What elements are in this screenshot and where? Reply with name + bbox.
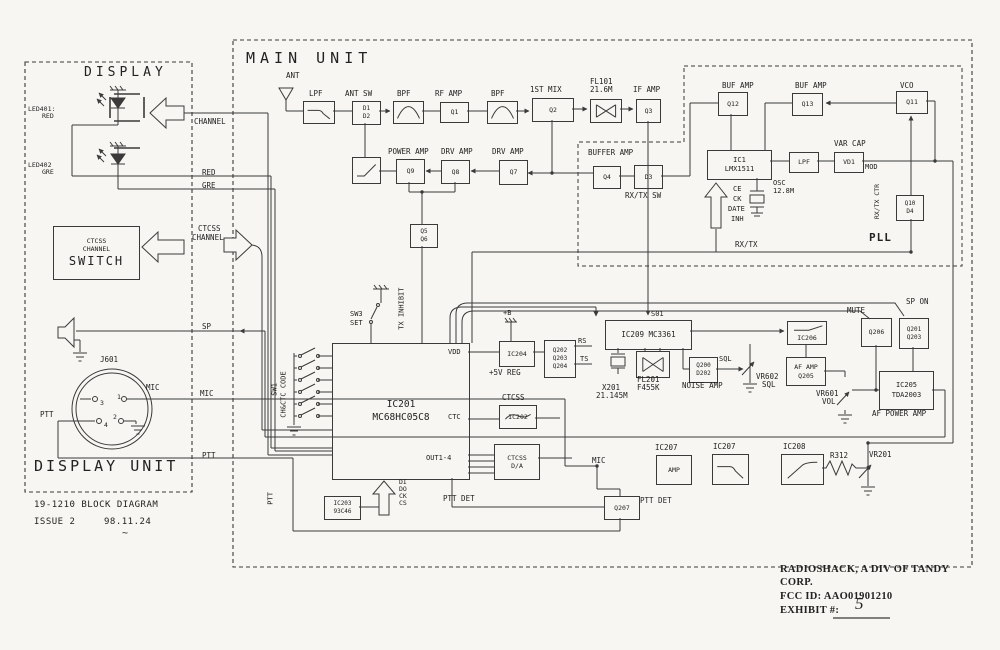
- eeprom-bus-arrow-icon: [373, 481, 395, 515]
- q206-box-text-0: Q206: [869, 328, 885, 336]
- out1-4-pin: OUT1-4: [426, 455, 451, 463]
- ic203-box-text-0: IC203: [333, 500, 351, 508]
- noise-amp-box: Q200D202: [689, 357, 718, 383]
- mic-node-label: MIC: [592, 457, 606, 465]
- if-amp-label: IF AMP: [633, 86, 660, 94]
- mute-label: MUTE: [847, 307, 865, 315]
- display-title: DISPLAY: [84, 66, 167, 80]
- lpf-box-symbol: [304, 102, 334, 123]
- ctcss-channel-arrow-icon: [224, 230, 252, 260]
- d3-box-text-0: D3: [645, 173, 653, 181]
- ic209-box-text-0: IC209 MC3361: [621, 330, 675, 340]
- q8-box-text-0: Q8: [452, 168, 460, 176]
- block-diagram-page: DISPLAYLED401:REDLED402GREJ601MICPTT3142…: [0, 0, 1000, 650]
- footer-fcc-id: FCC ID: AAO01901210: [780, 591, 892, 603]
- ctcss-da-box-text-1: D/A: [511, 462, 523, 470]
- pin-2: 2: [113, 414, 117, 421]
- q201-q203-box: Q201Q203: [899, 318, 929, 349]
- tx-inhibit-label: TX INHIBIT: [398, 288, 406, 330]
- rs-label: RS: [578, 338, 586, 346]
- pin-1: 1: [117, 394, 121, 401]
- q207-box: Q207: [604, 496, 640, 520]
- footer-company-1: RADIOSHACK, A DIV OF TANDY: [780, 564, 949, 576]
- q13-box: Q13: [792, 93, 823, 116]
- vr602-func: SQL: [762, 381, 776, 389]
- af-amp-box: AF AMPQ205: [786, 357, 826, 386]
- ant-sw-label: ANT SW: [345, 90, 372, 98]
- ic208-filter-box-symbol: [782, 455, 823, 484]
- reg-5v-label: +5V REG: [489, 369, 521, 377]
- q9-box-text-0: Q9: [407, 167, 415, 175]
- q202-box: Q202Q203Q204: [544, 340, 576, 378]
- ptt-vert-label: PTT: [267, 492, 275, 505]
- led402-color: GRE: [42, 169, 54, 176]
- q11-box-text-0: Q11: [906, 98, 918, 106]
- issue-label: ISSUE 2: [34, 518, 75, 528]
- q202-box-text-0: Q202: [553, 347, 567, 355]
- ant-sw-box: D1D2: [352, 101, 381, 125]
- rf-amp-box: Q1: [440, 102, 469, 123]
- buffer-amp-label: BUFFER AMP: [588, 149, 633, 157]
- ck-label: CK: [733, 196, 741, 204]
- q202-box-text-1: Q203: [553, 355, 567, 363]
- ic1-box-text-1: LMX1511: [725, 165, 755, 174]
- footer-company-2: CORP.: [780, 577, 813, 589]
- q11-box: Q11: [896, 91, 928, 114]
- drv-amp2-label: DRV AMP: [492, 148, 524, 156]
- q206-box: Q206: [861, 318, 892, 347]
- pll-bus-arrow-icon: [705, 183, 727, 228]
- r312-label: R312: [830, 452, 848, 460]
- ic204-box-text-0: IC204: [507, 350, 527, 358]
- tx-rx-ant-switch-box-symbol: [353, 158, 380, 183]
- ic202-box: IC202: [499, 405, 537, 429]
- noise-amp-box-text-1: D202: [696, 370, 710, 378]
- ctc-pin: CTC: [448, 414, 461, 422]
- rx-tx-ctr-label: RX/TX CTR: [874, 184, 881, 219]
- ic207-filter-box-symbol: [713, 455, 748, 484]
- main-title: MAIN UNIT: [246, 50, 372, 67]
- af-amp-box-text-0: AF AMP: [794, 363, 817, 371]
- ptt-det-label-1: PTT DET: [443, 495, 475, 503]
- led402-icon: [97, 146, 125, 178]
- mic-amp-box: AMP: [656, 455, 692, 485]
- ic205-box: IC205TDA2003: [879, 371, 934, 410]
- model-line: 19-1210 BLOCK DIAGRAM: [34, 501, 158, 511]
- ctcss-switch-box-text-2: SWITCH: [69, 254, 124, 270]
- ic204-box: IC204: [499, 341, 535, 367]
- ctcss-switch-box-text-1: CHANNEL: [83, 245, 110, 253]
- cs-label: CS: [399, 500, 407, 507]
- data-label: DATE: [728, 206, 745, 214]
- bpf1-box-symbol: [394, 102, 423, 123]
- q201-q203-box-text-1: Q203: [907, 334, 921, 342]
- ic203-box-text-1: 93C46: [333, 508, 351, 516]
- sig-ctcss-1: CTCSS: [198, 225, 221, 233]
- osc-freq: 12.8M: [773, 188, 794, 196]
- mic-amp-box-text-0: AMP: [668, 466, 680, 474]
- channel-arrow-icon: [150, 98, 184, 128]
- sig-gre: GRE: [202, 182, 216, 190]
- x201-freq: 21.145M: [596, 392, 628, 400]
- drv-amp1-label: DRV AMP: [441, 148, 473, 156]
- ce-label: CE: [733, 186, 741, 194]
- ic207b-label: IC207: [713, 443, 736, 451]
- sig-sp: SP: [202, 323, 211, 331]
- ic207-filter-box: [712, 454, 749, 485]
- if-amp-box-text-0: Q3: [645, 107, 653, 115]
- q4-box: Q4: [593, 166, 621, 189]
- first-mix-box: Q2: [532, 98, 574, 122]
- bpf1-box: [393, 101, 424, 124]
- fl101-box-symbol: [591, 100, 621, 122]
- ic208-filter-box: [781, 454, 824, 485]
- power-amp-label: POWER AMP: [388, 148, 429, 156]
- ic207a-label: IC207: [655, 444, 678, 452]
- pin-4: 4: [104, 422, 108, 429]
- ic203-box: IC20393C46: [324, 496, 361, 520]
- q5-q6-box: Q5Q6: [410, 224, 438, 248]
- sig-ctcss-2: CHANNEL: [192, 234, 224, 242]
- bpf1-label: BPF: [397, 90, 411, 98]
- ctcss-switch-box: CTCSSCHANNELSWITCH: [53, 226, 140, 280]
- q10-d4-box: Q10D4: [896, 195, 924, 221]
- ic205-box-text-1: TDA2003: [892, 391, 922, 400]
- ctcss-arrow-icon: [142, 232, 184, 262]
- q9-box: Q9: [396, 159, 425, 184]
- fl201-box: [636, 351, 670, 378]
- connector-j601: [72, 369, 152, 449]
- vdd-pin: VDD: [448, 349, 461, 357]
- q5-q6-box-text-0: Q5: [420, 228, 427, 236]
- ant-sw-box-text-0: D1: [363, 105, 370, 113]
- af-amp-box-text-1: Q205: [798, 372, 814, 380]
- sig-red: RED: [202, 169, 216, 177]
- fl101-freq: 21.6M: [590, 86, 613, 94]
- rf-amp-label: RF AMP: [435, 90, 462, 98]
- mod-label: MOD: [865, 164, 878, 172]
- tx-rx-ant-switch-box: [352, 157, 381, 184]
- if-amp-box: Q3: [636, 99, 661, 123]
- af-power-amp-label: AF POWER AMP: [872, 410, 926, 418]
- ctcss-switch-box-text-0: CTCSS: [87, 237, 107, 245]
- ic202-box-text-0: IC202: [508, 413, 528, 421]
- tilde-mark: ~: [122, 528, 128, 539]
- q8-box: Q8: [441, 160, 470, 184]
- q7-box: Q7: [499, 160, 528, 185]
- ic201-box-text-0: IC201: [387, 399, 416, 411]
- q5-q6-box-text-1: Q6: [420, 236, 427, 244]
- inh-label: INH: [731, 216, 744, 224]
- ctcss-da-box-text-0: CTCSS: [507, 454, 527, 462]
- buf-amp2-label: BUF AMP: [795, 82, 827, 90]
- sp-on-label: SP ON: [906, 298, 929, 306]
- fl101-box: [590, 99, 622, 123]
- ic201-box-text-1: MC68HC05C8: [372, 412, 429, 424]
- sig-mic: MIC: [200, 390, 214, 398]
- q12-box-text-0: Q12: [727, 100, 739, 108]
- x201-crystal-icon: [611, 357, 625, 366]
- sw1-label: SW1: [271, 383, 279, 396]
- bpf2-label: BPF: [491, 90, 505, 98]
- mic-pin-label: MIC: [146, 384, 160, 392]
- sig-ptt: PTT: [202, 452, 216, 460]
- ctcss-da-box: CTCSSD/A: [494, 444, 540, 480]
- q13-box-text-0: Q13: [802, 100, 814, 108]
- vco-label: VCO: [900, 82, 914, 90]
- pll-lpf-box: LPF: [789, 152, 819, 173]
- ic206-box-text-0: IC206: [797, 334, 817, 342]
- ant-label: ANT: [286, 72, 300, 80]
- buf-amp1-label: BUF AMP: [722, 82, 754, 90]
- s01-label: S01: [651, 311, 664, 319]
- connector-ref: J601: [100, 356, 118, 364]
- q10-d4-box-text-0: Q10: [905, 200, 916, 208]
- display-unit-title: DISPLAY UNIT: [34, 458, 178, 475]
- pin-3: 3: [100, 400, 104, 407]
- vr601-func: VOL: [822, 398, 836, 406]
- ic1-box-text-0: IC1: [733, 156, 746, 165]
- ctcss-ic202-label: CTCSS: [502, 394, 525, 402]
- exhibit-value: 5: [855, 595, 864, 614]
- q4-box-text-0: Q4: [603, 173, 611, 181]
- plus-b-label: +B: [503, 310, 511, 318]
- sw3-label: SW3: [350, 311, 363, 319]
- noise-amp-label: NOISE AMP: [682, 382, 723, 390]
- rf-amp-box-text-0: Q1: [451, 108, 459, 116]
- ic206-box: IC206: [787, 321, 827, 345]
- ic205-box-text-0: IC205: [896, 381, 917, 390]
- rx-tx-label: RX/TX: [735, 241, 758, 249]
- ptt-pin-label: PTT: [40, 411, 54, 419]
- sig-channel: CHANNEL: [194, 118, 226, 126]
- noise-amp-box-text-0: Q200: [696, 362, 710, 370]
- ch-ctc-code-label: CH&CTC CODE: [280, 371, 288, 417]
- var-cap-label: VAR CAP: [834, 140, 866, 148]
- fl201-type: F455K: [637, 384, 660, 392]
- q201-q203-box-text-0: Q201: [907, 326, 921, 334]
- footer-exhibit: EXHIBIT #:: [780, 605, 839, 617]
- ic209-box: IC209 MC3361: [605, 320, 692, 350]
- issue-date: 98.11.24: [104, 518, 151, 528]
- first-mix-label: 1ST MIX: [530, 86, 562, 94]
- q7-box-text-0: Q7: [510, 168, 518, 176]
- ptt-det-label-2: PTT DET: [640, 497, 672, 505]
- vd1-box-text-0: VD1: [843, 158, 855, 166]
- bpf2-box: [487, 101, 518, 124]
- rx-tx-sw-label: RX/TX SW: [625, 192, 661, 200]
- lpf-box: [303, 101, 335, 124]
- ant-sw-box-text-1: D2: [363, 113, 370, 121]
- osc-crystal-icon: [750, 195, 764, 203]
- vr201-label: VR201: [869, 451, 892, 459]
- sql-label: SQL: [719, 356, 732, 364]
- q12-box: Q12: [718, 92, 748, 116]
- set-label: SET: [350, 320, 363, 328]
- speaker-icon: [58, 318, 74, 347]
- led401-color: RED: [42, 113, 54, 120]
- ic208-label: IC208: [783, 443, 806, 451]
- bpf2-box-symbol: [488, 102, 517, 123]
- q202-box-text-2: Q204: [553, 363, 567, 371]
- lpf-label: LPF: [309, 90, 323, 98]
- ic1-box: IC1LMX1511: [707, 150, 772, 180]
- ts-label: TS: [580, 356, 588, 364]
- fl201-box-symbol: [637, 352, 669, 377]
- pll-lpf-box-text-0: LPF: [798, 158, 810, 166]
- q10-d4-box-text-1: D4: [906, 208, 913, 216]
- pll-label: PLL: [869, 232, 892, 244]
- q207-box-text-0: Q207: [614, 504, 630, 512]
- antenna-icon: [279, 88, 293, 100]
- first-mix-box-text-0: Q2: [549, 106, 557, 114]
- vd1-box: VD1: [834, 152, 864, 173]
- d3-box: D3: [634, 165, 663, 189]
